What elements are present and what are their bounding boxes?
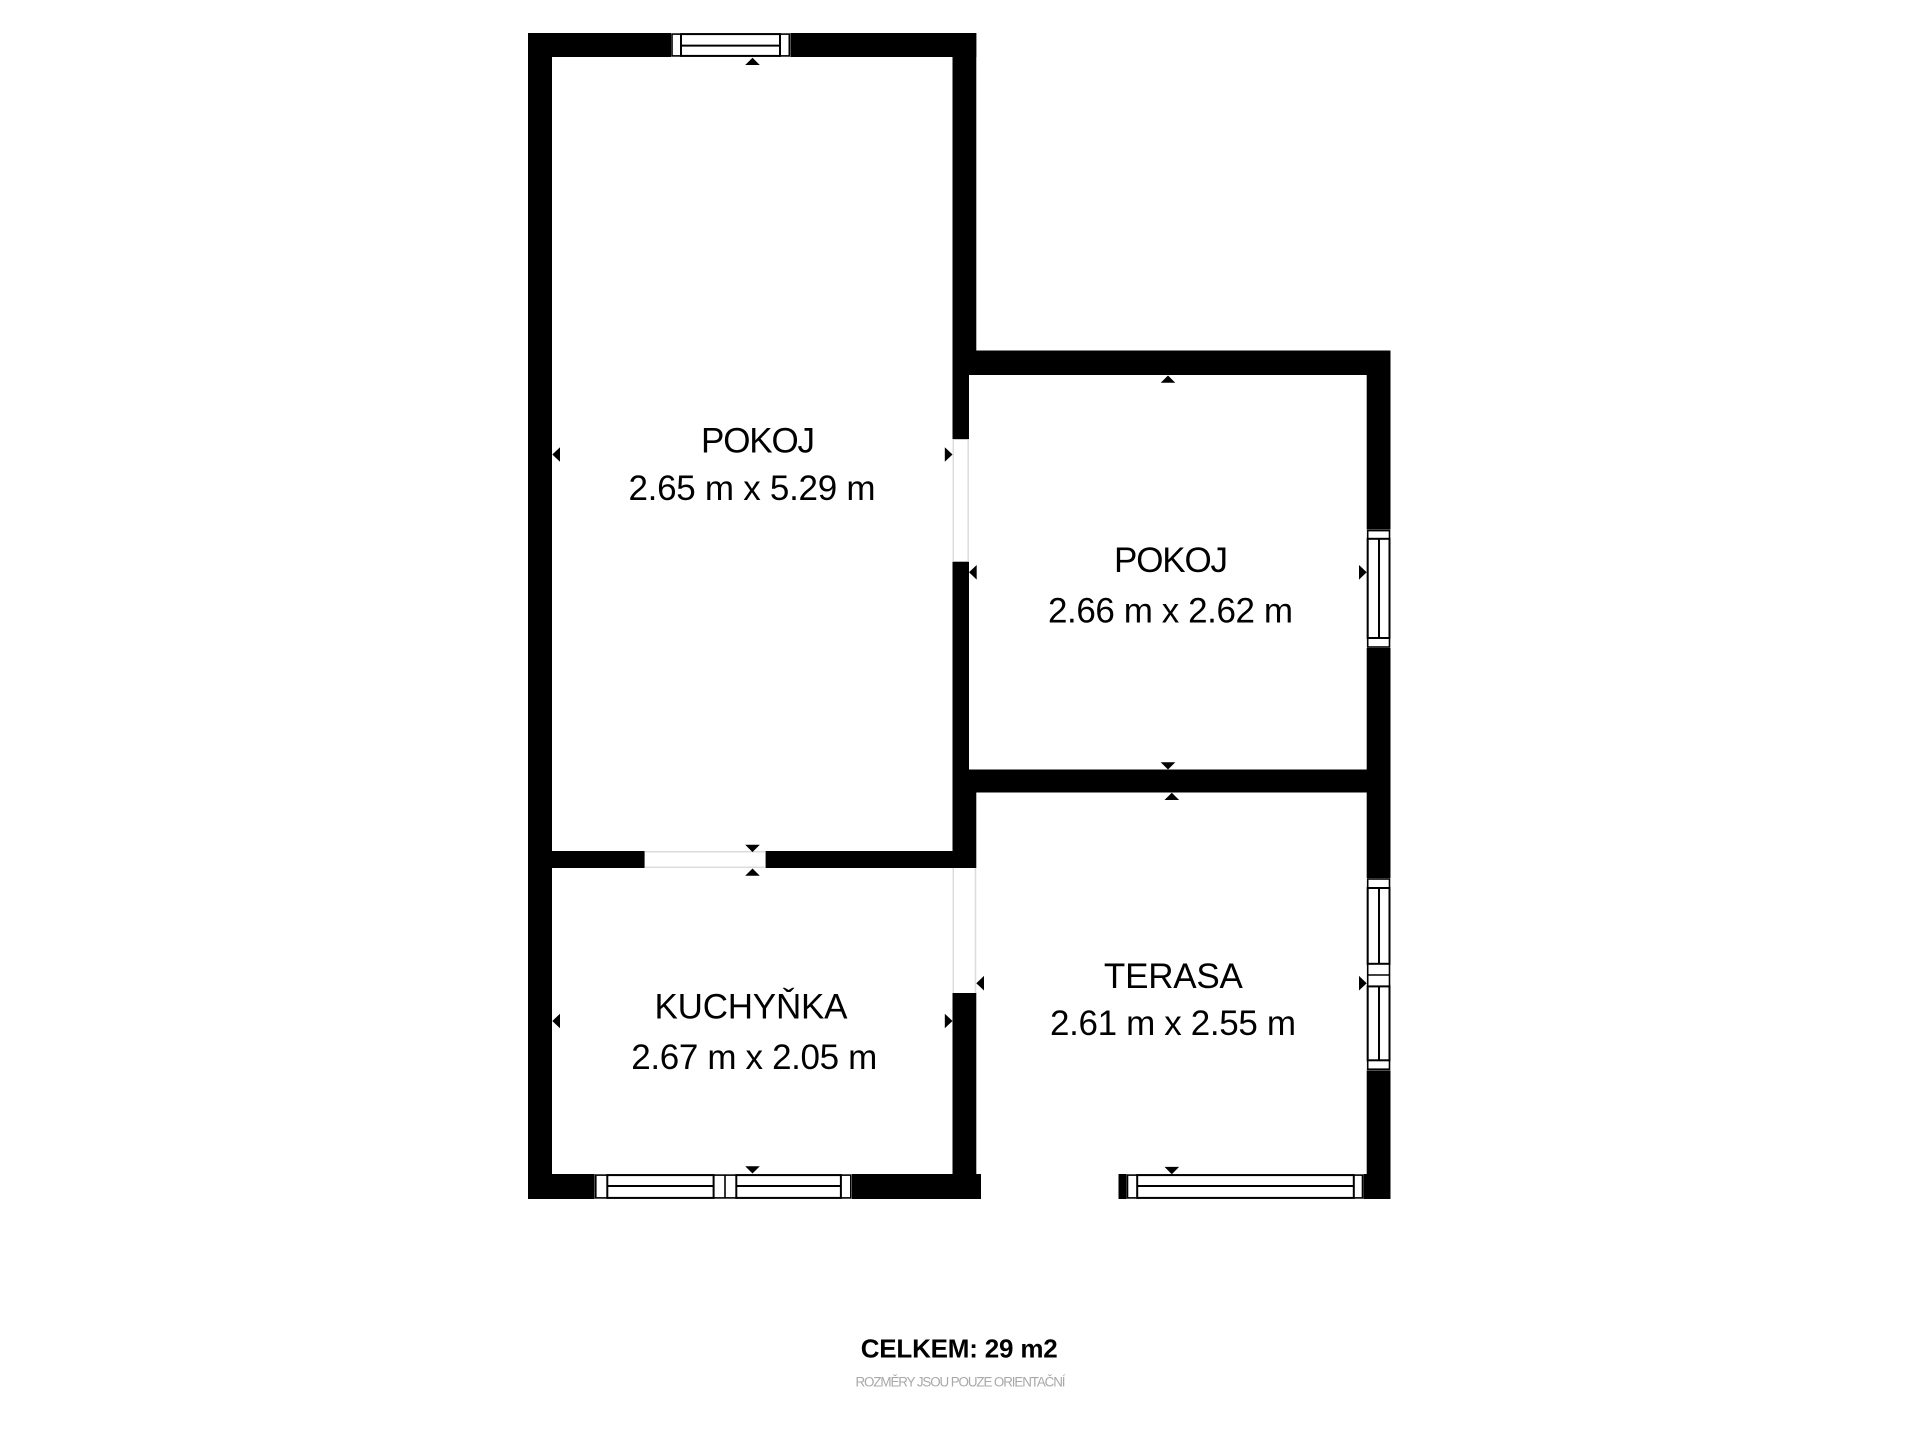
svg-text:POKOJ: POKOJ bbox=[701, 422, 815, 461]
svg-text:2.66 m x 2.62 m: 2.66 m x 2.62 m bbox=[1048, 592, 1293, 631]
svg-text:2.61 m x 2.55 m: 2.61 m x 2.55 m bbox=[1050, 1004, 1296, 1043]
svg-text:ROZMĚRY JSOU POUZE ORIENTAČNÍ: ROZMĚRY JSOU POUZE ORIENTAČNÍ bbox=[856, 1375, 1066, 1390]
svg-text:2.67 m x 2.05 m: 2.67 m x 2.05 m bbox=[631, 1038, 877, 1077]
svg-text:CELKEM: 29 m2: CELKEM: 29 m2 bbox=[861, 1334, 1058, 1364]
svg-text:TERASA: TERASA bbox=[1104, 957, 1244, 996]
svg-text:POKOJ: POKOJ bbox=[1114, 541, 1228, 580]
svg-text:KUCHYŇKA: KUCHYŇKA bbox=[655, 987, 849, 1026]
svg-text:2.65 m x 5.29 m: 2.65 m x 5.29 m bbox=[629, 469, 876, 508]
